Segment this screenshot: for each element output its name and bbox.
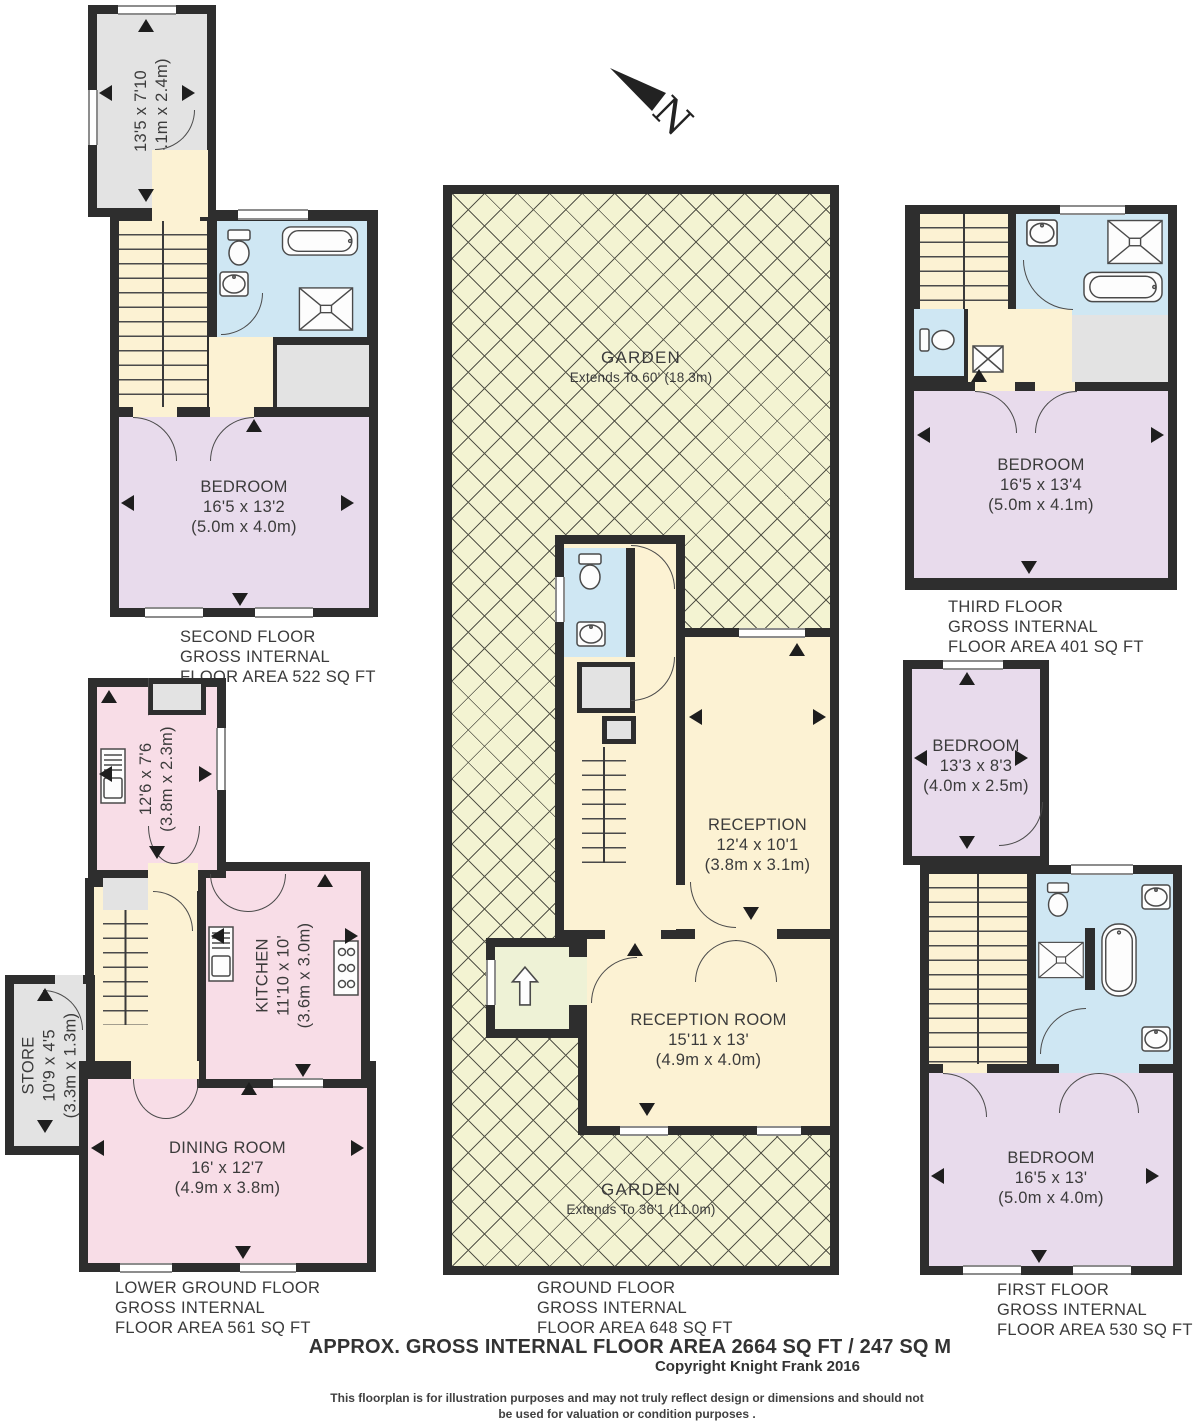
staircase xyxy=(582,747,626,863)
floor-caption-line: GROSS INTERNAL xyxy=(948,617,1178,637)
wall-arrow-marker xyxy=(345,928,358,944)
lower-floor-caption: LOWER GROUND FLOOR GROSS INTERNAL FLOOR … xyxy=(115,1278,375,1338)
window xyxy=(216,728,226,790)
door-opening xyxy=(1059,1064,1139,1073)
second-floor-plan: 13'5 x 7'10 (4.1m x 2.4m) xyxy=(88,5,388,695)
room-closet xyxy=(1072,315,1168,382)
wall-arrow-marker xyxy=(199,766,212,782)
room-name: BEDROOM xyxy=(929,1148,1173,1168)
wall-arrow-marker xyxy=(99,766,112,782)
room-name: DINING ROOM xyxy=(88,1138,367,1158)
wall-arrow-marker xyxy=(1151,427,1164,443)
wall-arrow-marker xyxy=(627,943,643,956)
door-opening xyxy=(210,407,254,417)
room-metric: (5.0m x 4.1m) xyxy=(914,495,1168,515)
wall-arrow-marker xyxy=(235,1246,251,1259)
wall-arrow-marker xyxy=(743,907,759,920)
wall-arrow-marker xyxy=(99,85,112,101)
disclaimer-line-2: be used for valuation or condition purpo… xyxy=(127,1406,1127,1421)
shower-icon xyxy=(1107,218,1163,266)
floor-caption-line: LOWER GROUND FLOOR xyxy=(115,1278,375,1298)
room-dims: 13'5 x 7'10 xyxy=(131,58,152,164)
sink-icon xyxy=(1141,884,1171,910)
toilet-icon xyxy=(1045,882,1071,918)
wall-arrow-marker xyxy=(101,690,117,703)
room-closet xyxy=(277,345,369,407)
large-bedroom-label: BEDROOM 16'5 x 13' (5.0m x 4.0m) xyxy=(929,1148,1173,1208)
lightwell xyxy=(153,684,201,710)
room-metric: (4.9m x 4.0m) xyxy=(587,1050,830,1070)
room-name: RECEPTION xyxy=(685,815,830,835)
lower-ground-floor-plan: STORE 10'9 x 4'5 (3.3m x 1.3m) KITCHEN 1… xyxy=(5,678,400,1378)
window xyxy=(555,577,565,622)
understair-closet xyxy=(103,878,148,911)
garden-extends: Extends To 60' (18.3m) xyxy=(503,368,779,388)
reception-label: RECEPTION 12'4 x 10'1 (3.8m x 3.1m) xyxy=(685,815,830,875)
first-floor-caption: FIRST FLOOR GROSS INTERNAL FLOOR AREA 53… xyxy=(997,1280,1200,1340)
room-name: RECEPTION ROOM xyxy=(587,1010,830,1030)
window xyxy=(1071,864,1133,875)
room-name: BEDROOM xyxy=(912,736,1040,756)
door-opening xyxy=(676,885,685,929)
window xyxy=(963,1265,1021,1275)
window xyxy=(620,1126,668,1136)
window xyxy=(240,1263,296,1273)
shower-icon xyxy=(295,287,357,331)
window xyxy=(145,607,203,618)
floor-caption-line: SECOND FLOOR xyxy=(180,627,410,647)
door-opening xyxy=(569,957,587,1005)
wall-arrow-marker xyxy=(639,1103,655,1116)
floor-caption-line: FIRST FLOOR xyxy=(997,1280,1200,1300)
wall-arrow-marker xyxy=(246,419,262,432)
window xyxy=(255,607,313,618)
wall-arrow-marker xyxy=(917,427,930,443)
room-dims: 16'5 x 13' xyxy=(929,1168,1173,1188)
ground-floor-plan: GARDEN Extends To 60' (18.3m) GARDEN Ext… xyxy=(443,185,843,1345)
staircase xyxy=(103,910,148,1025)
door-opening xyxy=(975,382,1015,391)
garden-top-label: GARDEN Extends To 60' (18.3m) xyxy=(503,348,779,388)
utility-label: 12'6 x 7'6 (3.8m x 2.3m) xyxy=(136,726,178,832)
wall-arrow-marker xyxy=(241,1082,257,1095)
wall-arrow-marker xyxy=(1031,1250,1047,1263)
wall-arrow-marker xyxy=(971,369,987,382)
window xyxy=(238,209,308,220)
total-area-text: APPROX. GROSS INTERNAL FLOOR AREA 2664 S… xyxy=(130,1336,1130,1359)
third-floor-caption: THIRD FLOOR GROSS INTERNAL FLOOR AREA 40… xyxy=(948,597,1178,657)
landing-opening xyxy=(152,208,200,222)
room-metric: (3.8m x 3.1m) xyxy=(685,855,830,875)
north-arrow-triangle xyxy=(610,68,666,111)
room-metric: (5.0m x 4.0m) xyxy=(119,517,369,537)
window xyxy=(88,90,98,145)
floor-caption-line: GROSS INTERNAL xyxy=(997,1300,1200,1320)
wall-arrow-marker xyxy=(138,189,154,202)
hob-icon xyxy=(333,940,359,996)
wall-arrow-marker xyxy=(138,19,154,32)
room-dims: 12'6 x 7'6 xyxy=(136,726,157,832)
room-landing xyxy=(209,337,273,407)
garden-bottom-label: GARDEN Extends To 36'1 (11.0m) xyxy=(503,1180,779,1220)
sink-icon xyxy=(1025,219,1059,247)
staircase xyxy=(920,214,1008,309)
small-bedroom-label: BEDROOM 13'3 x 8'3 (4.0m x 2.5m) xyxy=(912,736,1040,796)
sink-icon xyxy=(576,621,606,647)
room-name: BEDROOM xyxy=(119,477,369,497)
wall-arrow-marker xyxy=(813,709,826,725)
door-opening xyxy=(605,929,661,940)
disclaimer-line-1: This floorplan is for illustration purpo… xyxy=(127,1390,1127,1406)
wall-arrow-marker xyxy=(295,1064,311,1077)
window xyxy=(943,660,1003,670)
floor-caption-line: GROSS INTERNAL xyxy=(180,647,410,667)
wall-arrow-marker xyxy=(37,988,53,1001)
room-metric: (5.0m x 4.0m) xyxy=(929,1188,1173,1208)
wall-arrow-marker xyxy=(232,593,248,606)
floor-caption-line: FLOOR AREA 401 SQ FT xyxy=(948,637,1178,657)
shower-icon xyxy=(1038,930,1084,990)
door-opening xyxy=(55,975,83,984)
ground-floor-caption: GROUND FLOOR GROSS INTERNAL FLOOR AREA 6… xyxy=(537,1278,777,1338)
bathtub-icon xyxy=(1101,922,1137,998)
window xyxy=(1060,205,1125,215)
floor-caption-line: GROSS INTERNAL xyxy=(115,1298,375,1318)
copyright-text: Copyright Knight Frank 2016 xyxy=(560,1358,860,1375)
entry-up-arrow-icon xyxy=(510,965,540,1007)
room-dims: 15'11 x 13' xyxy=(587,1030,830,1050)
disclaimer-text: This floorplan is for illustration purpo… xyxy=(127,1390,1127,1421)
wall-arrow-marker xyxy=(959,836,975,849)
floor-caption-line: GROSS INTERNAL xyxy=(537,1298,777,1318)
first-floor-plan: BEDROOM 13'3 x 8'3 (4.0m x 2.5m) BEDROOM… xyxy=(903,660,1193,1360)
room-metric: (3.8m x 2.3m) xyxy=(157,726,178,832)
window xyxy=(739,628,805,638)
sink-icon xyxy=(1141,1026,1171,1052)
bedroom-label: BEDROOM 16'5 x 13'2 (5.0m x 4.0m) xyxy=(119,477,369,537)
wall-arrow-marker xyxy=(182,85,195,101)
room-dims: 16'5 x 13'2 xyxy=(119,497,369,517)
room-dims: 11'10 x 10' xyxy=(273,922,294,1028)
room-name: BEDROOM xyxy=(914,455,1168,475)
third-floor-plan: BEDROOM 16'5 x 13'4 (5.0m x 4.1m) THIRD … xyxy=(905,205,1190,675)
window xyxy=(273,1078,323,1088)
door-arc xyxy=(148,678,149,716)
room-metric: (4.9m x 3.8m) xyxy=(88,1178,367,1198)
room-metric: (3.6m x 3.0m) xyxy=(294,922,315,1028)
north-arrow-icon: N xyxy=(595,55,715,155)
garden-name: GARDEN xyxy=(503,1180,779,1200)
dining-label: DINING ROOM 16' x 12'7 (4.9m x 3.8m) xyxy=(88,1138,367,1198)
bathtub-icon xyxy=(280,226,360,256)
room-dims: 16' x 12'7 xyxy=(88,1158,367,1178)
door-opening xyxy=(133,407,177,417)
door-opening xyxy=(1035,382,1075,391)
door-opening xyxy=(943,1064,987,1073)
interior-wall xyxy=(1085,928,1095,990)
staircase xyxy=(119,221,207,407)
window xyxy=(120,1263,172,1273)
room-metric: (4.0m x 2.5m) xyxy=(912,776,1040,796)
wall-arrow-marker xyxy=(149,846,165,859)
wall-arrow-marker xyxy=(1021,561,1037,574)
room-dims: 12'4 x 10'1 xyxy=(685,835,830,855)
room-dims: 16'5 x 13'4 xyxy=(914,475,1168,495)
door-opening xyxy=(131,1061,199,1079)
staircase xyxy=(929,874,1027,1064)
window xyxy=(118,5,176,15)
wall-arrow-marker xyxy=(211,928,224,944)
toilet-icon xyxy=(577,553,603,591)
door-opening xyxy=(695,929,777,940)
window xyxy=(486,960,496,1005)
floor-caption-line: FLOOR AREA 561 SQ FT xyxy=(115,1318,375,1338)
room-cupboard xyxy=(607,721,631,739)
wall-arrow-marker xyxy=(959,672,975,685)
room-landing-upper xyxy=(152,150,208,217)
bedroom-label: BEDROOM 16'5 x 13'4 (5.0m x 4.1m) xyxy=(914,455,1168,515)
room-dims: 13'3 x 8'3 xyxy=(912,756,1040,776)
wall-arrow-marker xyxy=(37,1120,53,1133)
wall-arrow-marker xyxy=(689,709,702,725)
toilet-icon xyxy=(226,229,252,267)
door-opening xyxy=(148,863,198,891)
bathtub-icon xyxy=(1083,271,1163,303)
floor-caption-line: FLOOR AREA 648 SQ FT xyxy=(537,1318,777,1338)
garden-name: GARDEN xyxy=(503,348,779,368)
toilet-icon xyxy=(919,327,957,353)
floorplan-canvas: N 13'5 x 7'10 (4.1m x 2.4m) xyxy=(0,0,1200,1421)
room-closet xyxy=(582,667,630,708)
window xyxy=(1073,1265,1131,1275)
window xyxy=(757,1126,801,1136)
reception-room-label: RECEPTION ROOM 15'11 x 13' (4.9m x 4.0m) xyxy=(587,1010,830,1070)
wall-arrow-marker xyxy=(789,643,805,656)
kitchen-label: KITCHEN 11'10 x 10' (3.6m x 3.0m) xyxy=(252,922,315,1028)
garden-extends: Extends To 36'1 (11.0m) xyxy=(503,1200,779,1220)
floor-caption-line: THIRD FLOOR xyxy=(948,597,1178,617)
room-name: STORE xyxy=(19,1012,40,1118)
room-name: KITCHEN xyxy=(252,922,273,1028)
wall-arrow-marker xyxy=(317,874,333,887)
floor-caption-line: GROUND FLOOR xyxy=(537,1278,777,1298)
